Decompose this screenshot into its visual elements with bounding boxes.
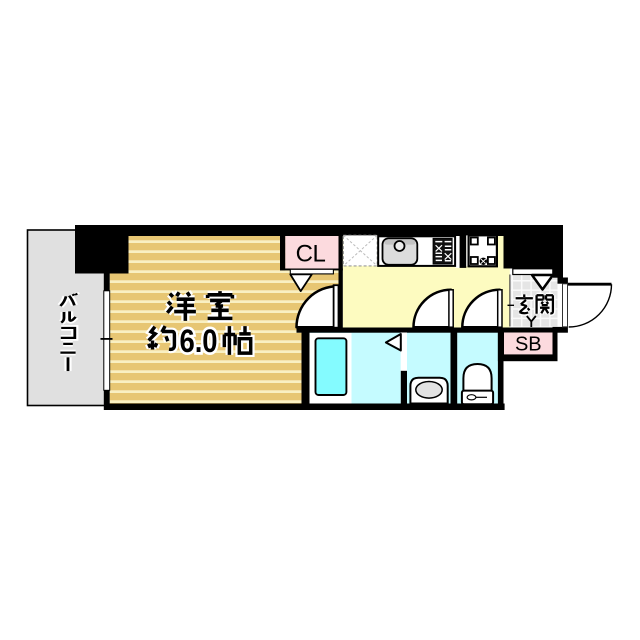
svg-text:CL: CL xyxy=(296,240,326,267)
svg-text:6.0: 6.0 xyxy=(179,324,217,360)
svg-text:SB: SB xyxy=(515,333,542,355)
